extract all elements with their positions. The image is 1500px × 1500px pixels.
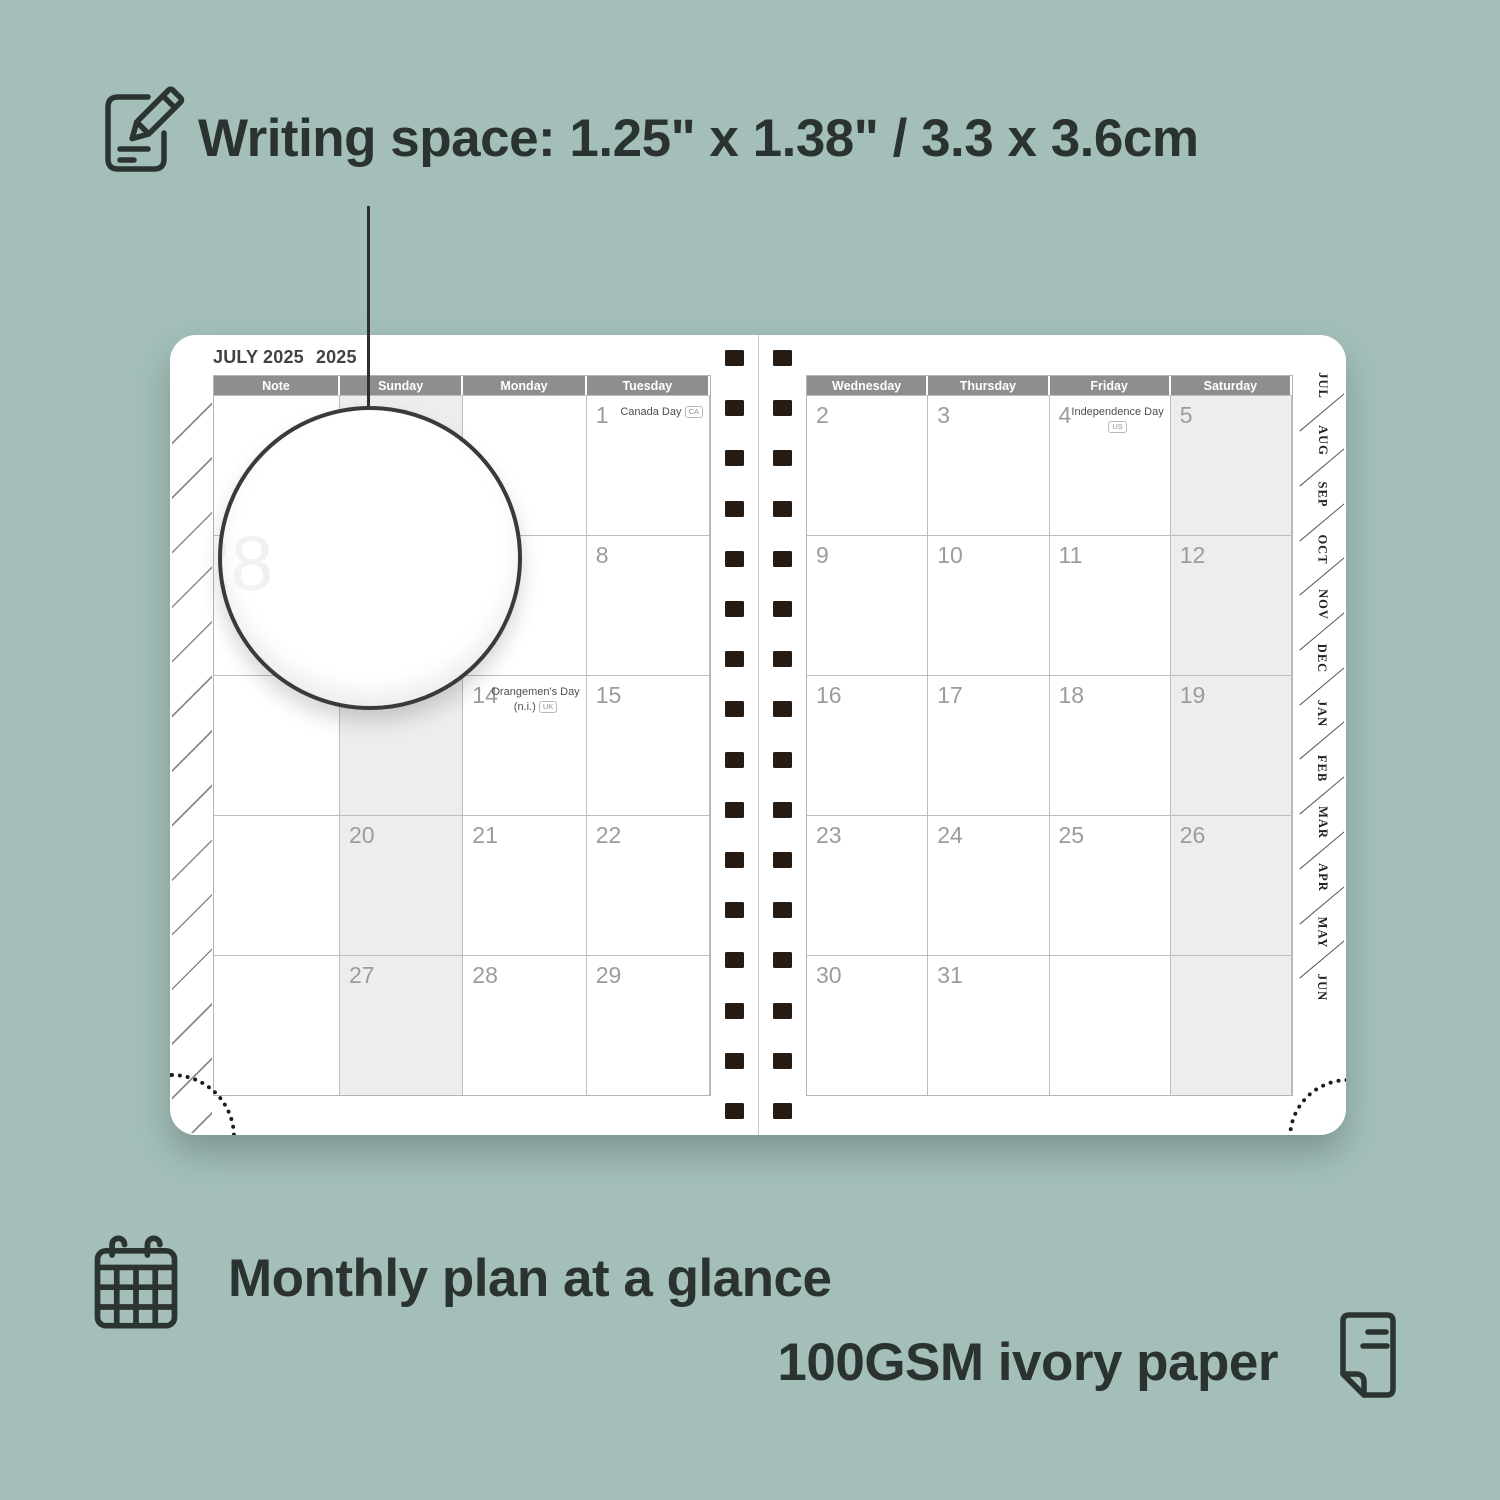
- column-header-wednesday: Wednesday: [807, 376, 928, 395]
- calendar-grid-icon: [84, 1230, 188, 1334]
- day-cell: 19: [1171, 675, 1292, 815]
- day-cell: 8: [587, 535, 710, 675]
- note-cell: [214, 815, 340, 955]
- day-cell: 24: [928, 815, 1049, 955]
- column-header-saturday: Saturday: [1171, 376, 1292, 395]
- paper-icon: [1316, 1306, 1416, 1406]
- day-cell: 21: [463, 815, 586, 955]
- day-cell: 25: [1050, 815, 1171, 955]
- country-badge: US: [1108, 421, 1126, 433]
- holiday-label: Independence DayUS: [1071, 405, 1163, 436]
- month-tab-oct: OCT: [1298, 522, 1346, 577]
- monthly-plan-text: Monthly plan at a glance: [228, 1248, 831, 1309]
- title-month: JULY 2025: [213, 347, 304, 367]
- month-tab-jul: JUL: [1298, 358, 1346, 413]
- day-cell: 29: [587, 955, 710, 1095]
- page-title: JULY 20252025: [213, 347, 357, 368]
- day-cell: 11: [1050, 535, 1171, 675]
- month-tabs: JUL AUG SEP OCT NOV DEC JAN FEB MAR APR …: [1298, 335, 1346, 1135]
- day-cell: 26: [1171, 815, 1292, 955]
- month-tab-jun: JUN: [1298, 960, 1346, 1015]
- calendar-right-grid: Wednesday Thursday Friday Saturday 2 3 4…: [806, 375, 1293, 1096]
- day-cell: 5: [1171, 395, 1292, 535]
- month-tab-dec: DEC: [1298, 632, 1346, 687]
- day-cell: [1050, 955, 1171, 1095]
- writing-space-text: Writing space: 1.25" x 1.38" / 3.3 x 3.6…: [198, 108, 1198, 169]
- column-header-note: Note: [214, 376, 340, 395]
- month-tab-apr: APR: [1298, 850, 1346, 905]
- month-tab-feb: FEB: [1298, 741, 1346, 796]
- column-header-sunday: Sunday: [340, 376, 463, 395]
- month-tab-sep: SEP: [1298, 467, 1346, 522]
- country-badge: UK: [539, 701, 557, 713]
- day-cell-canada-day: 1 Canada Day CA: [587, 395, 710, 535]
- day-cell: 9: [807, 535, 928, 675]
- day-cell: 20: [340, 815, 463, 955]
- day-cell: 31: [928, 955, 1049, 1095]
- callout-connector-line: [367, 206, 370, 412]
- holiday-label: Canada Day CA: [620, 405, 703, 420]
- corner-dots: [1288, 1078, 1346, 1135]
- day-cell: 28: [463, 955, 586, 1095]
- magnifier-ring: [218, 406, 522, 710]
- country-badge: CA: [685, 406, 703, 418]
- month-tab-jan: JAN: [1298, 686, 1346, 741]
- day-cell-independence-day: 4 Independence DayUS: [1050, 395, 1171, 535]
- day-cell: 18: [1050, 675, 1171, 815]
- page-edge-hatch: [172, 390, 212, 1133]
- planner-right-page: Wednesday Thursday Friday Saturday 2 3 4…: [758, 335, 1346, 1135]
- day-cell: 16: [807, 675, 928, 815]
- month-tab-may: MAY: [1298, 905, 1346, 960]
- day-cell: 3: [928, 395, 1049, 535]
- month-tab-mar: MAR: [1298, 796, 1346, 851]
- day-cell: 27: [340, 955, 463, 1095]
- day-cell: 15: [587, 675, 710, 815]
- column-header-friday: Friday: [1050, 376, 1171, 395]
- paper-text: 100GSM ivory paper: [777, 1332, 1278, 1393]
- day-cell: 12: [1171, 535, 1292, 675]
- month-tab-nov: NOV: [1298, 577, 1346, 632]
- day-cell: 2: [807, 395, 928, 535]
- day-cell: 22: [587, 815, 710, 955]
- day-cell: 23: [807, 815, 928, 955]
- product-image: Writing space: 1.25" x 1.38" / 3.3 x 3.6…: [0, 0, 1500, 1500]
- title-year: 2025: [316, 347, 357, 367]
- column-header-thursday: Thursday: [928, 376, 1049, 395]
- column-header-tuesday: Tuesday: [587, 376, 710, 395]
- day-cell: 30: [807, 955, 928, 1095]
- notepad-pencil-icon: [90, 80, 190, 184]
- note-cell: [214, 955, 340, 1095]
- day-cell: [1171, 955, 1292, 1095]
- day-cell: 17: [928, 675, 1049, 815]
- column-header-monday: Monday: [463, 376, 586, 395]
- month-tab-aug: AUG: [1298, 413, 1346, 468]
- week-number: 27: [222, 410, 314, 419]
- day-cell: 10: [928, 535, 1049, 675]
